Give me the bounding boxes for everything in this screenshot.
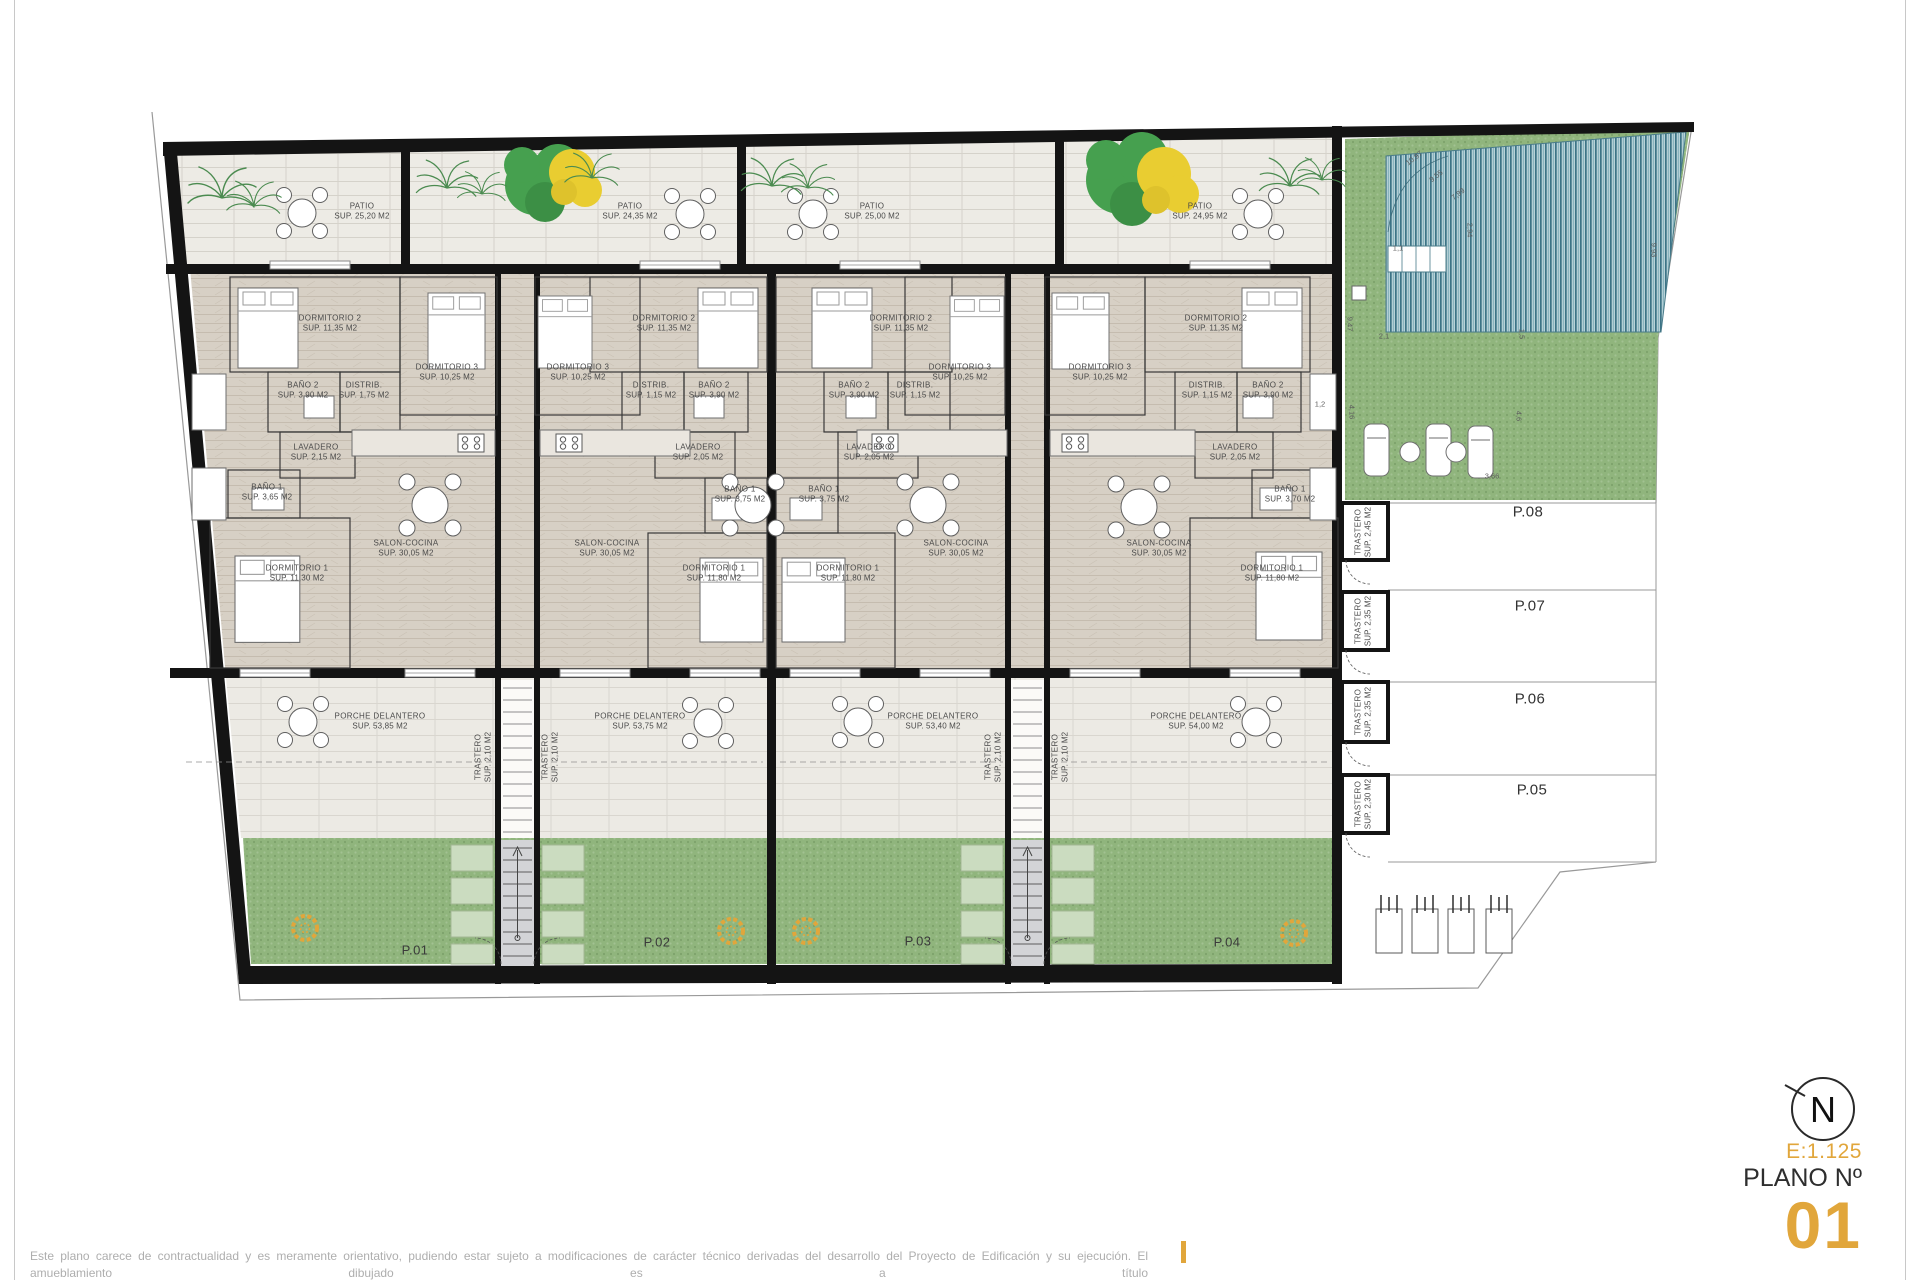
stairwell-1 <box>501 680 534 966</box>
stairwell-2 <box>1011 680 1044 966</box>
north-letter: N <box>1810 1089 1836 1130</box>
garden-lawn <box>243 838 1336 964</box>
orange-tick <box>1181 1241 1186 1263</box>
motorbike-bays <box>1376 895 1512 953</box>
scale-label: E:1.125 <box>1786 1140 1862 1164</box>
swimming-pool <box>1386 132 1686 332</box>
north-arrow: N <box>1783 1069 1859 1145</box>
disclaimer: Este plano carece de contractualidad y e… <box>30 1248 1148 1280</box>
disclaimer-line-1: Este plano carece de contractualidad y e… <box>30 1248 1148 1280</box>
storage-rooms <box>1342 503 1388 857</box>
floor-plan-drawing <box>0 0 1920 1280</box>
outdoor-shower <box>1352 286 1366 300</box>
porch-floor <box>226 678 1336 838</box>
sun-loungers <box>1364 424 1493 478</box>
parking-bays <box>1388 503 1656 862</box>
plan-sheet: PATIOSUP. 25,20 M2PATIOSUP. 24,35 M2PATI… <box>0 0 1920 1280</box>
plano-number: 01 <box>1785 1192 1862 1258</box>
